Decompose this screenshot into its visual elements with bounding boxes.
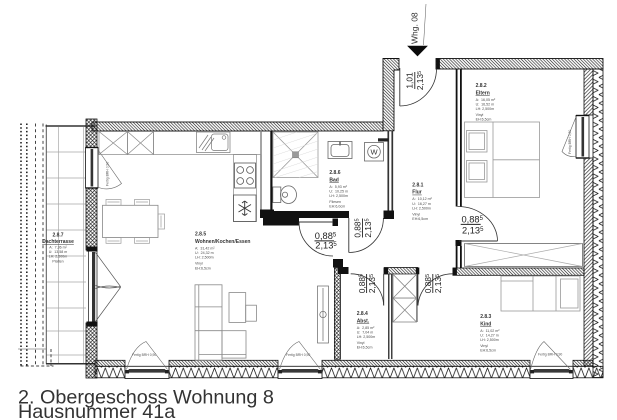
svg-text:Vinyl: Vinyl [195, 262, 203, 266]
svg-text:2.8.7: 2.8.7 [52, 233, 63, 239]
svg-text:Fliesen: Fliesen [329, 200, 341, 204]
svg-text:U: 14,27 m: U: 14,27 m [480, 333, 499, 337]
svg-text:2.8.5: 2.8.5 [195, 232, 206, 238]
svg-text:2.8.2: 2.8.2 [476, 83, 487, 89]
svg-text:A: 11,02 m²: A: 11,02 m² [480, 329, 500, 333]
svg-text:A: 10,12 m²: A: 10,12 m² [412, 197, 432, 201]
svg-text:Vinyl: Vinyl [476, 113, 484, 117]
svg-text:A: 16,05 m²: A: 16,05 m² [476, 98, 496, 102]
svg-text:U: 24,32 m: U: 24,32 m [195, 251, 214, 255]
svg-text:Hausnummer 41a: Hausnummer 41a [18, 401, 175, 420]
svg-text:U: 7,04 m: U: 7,04 m [357, 330, 374, 334]
svg-text:A: 5,93 m²: A: 5,93 m² [329, 185, 347, 189]
svg-text:U: 16,52 m: U: 16,52 m [476, 102, 495, 106]
svg-text:W: W [370, 147, 378, 156]
svg-text:Bad: Bad [329, 177, 338, 183]
svg-text:Wohnen/Kochen/Essen: Wohnen/Kochen/Essen [195, 239, 250, 245]
svg-text:U: 13,58 m: U: 13,58 m [49, 250, 68, 254]
svg-text:Kind: Kind [480, 321, 491, 327]
svg-text:LH: 2,500m: LH: 2,500m [412, 206, 431, 210]
svg-text:Fertig BRH 0,90: Fertig BRH 0,90 [132, 353, 156, 357]
svg-text:2.8.1: 2.8.1 [412, 182, 423, 188]
svg-text:EH:6,5cm: EH:6,5cm [476, 118, 492, 122]
svg-text:Fertig BRH 0,90: Fertig BRH 0,90 [568, 130, 572, 154]
svg-text:2.8.4: 2.8.4 [357, 311, 368, 317]
svg-text:Dachterrasse: Dachterrasse [42, 239, 74, 245]
svg-text:A: 7,36 m²: A: 7,36 m² [49, 245, 67, 249]
svg-text:Vinyl: Vinyl [412, 212, 420, 216]
svg-text:LH: 2,500m: LH: 2,500m [476, 107, 495, 111]
svg-text:LH: 2,500m: LH: 2,500m [49, 255, 68, 259]
svg-text:1,01: 1,01 [405, 72, 415, 89]
svg-text:Fertig BRH 0,90: Fertig BRH 0,90 [538, 353, 562, 357]
svg-text:2.8.6: 2.8.6 [329, 170, 340, 176]
svg-text:EH:6,5cm: EH:6,5cm [357, 346, 373, 350]
svg-text:EH:6,5cm: EH:6,5cm [480, 349, 496, 353]
svg-text:LH: 2,500m: LH: 2,500m [195, 256, 214, 260]
svg-text:EH:6,5cm: EH:6,5cm [412, 217, 428, 221]
svg-text:LH: 2,500m: LH: 2,500m [480, 338, 499, 342]
svg-text:Abst.: Abst. [357, 318, 370, 324]
svg-text:EH:6,0cm: EH:6,0cm [329, 205, 345, 209]
svg-text:Whg. 08: Whg. 08 [410, 12, 420, 44]
svg-text:EH:6,5cm: EH:6,5cm [195, 266, 211, 270]
svg-text:Flur: Flur [412, 190, 421, 196]
svg-text:Fertig BRH 0,90: Fertig BRH 0,90 [286, 353, 310, 357]
svg-text:Vinyl: Vinyl [480, 344, 488, 348]
svg-text:Vinyl: Vinyl [357, 341, 365, 345]
svg-text:LH: 2,500m: LH: 2,500m [329, 194, 348, 198]
svg-text:2.8.3: 2.8.3 [480, 314, 491, 320]
svg-text:Platten: Platten [52, 259, 63, 263]
svg-text:U: 10,25 m: U: 10,25 m [329, 189, 348, 193]
svg-text:LH: 2,500m: LH: 2,500m [357, 335, 376, 339]
svg-text:Fertig BRH 0,90: Fertig BRH 0,90 [106, 162, 110, 186]
svg-text:A: 31,42 m²: A: 31,42 m² [195, 247, 215, 251]
svg-text:A: 2,85 m²: A: 2,85 m² [357, 326, 375, 330]
svg-text:Eltern: Eltern [476, 90, 490, 96]
svg-text:U: 16,27 m: U: 16,27 m [412, 202, 431, 206]
